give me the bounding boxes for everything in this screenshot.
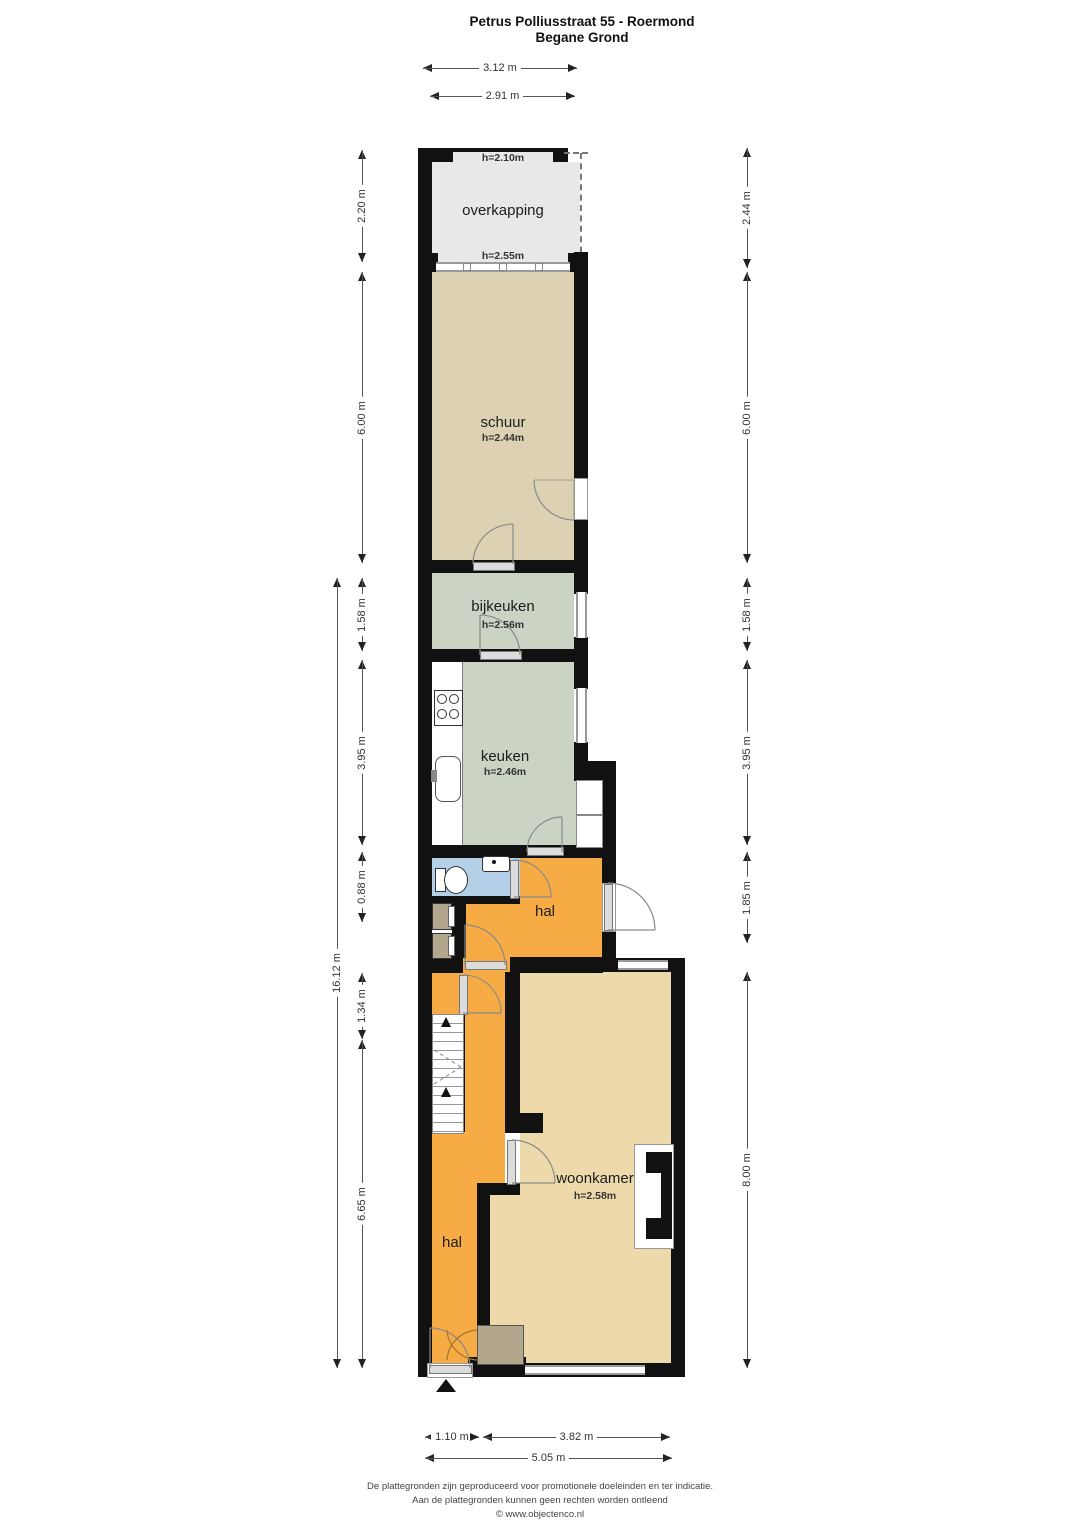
dim-top-291: 2.91 m — [430, 88, 575, 104]
stairs — [432, 1014, 464, 1134]
wall-hal-split-a — [418, 957, 463, 973]
sink-tap — [431, 770, 437, 782]
note-h255: h=2.55m — [453, 250, 553, 262]
note-keuken-h: h=2.46m — [445, 766, 565, 778]
note-schuur-h: h=2.44m — [443, 432, 563, 444]
door-bijkeuken — [480, 651, 522, 660]
overkapping-dashed-right — [578, 153, 582, 263]
title-floor: Begane Grond — [332, 30, 832, 46]
cabinet-2-door — [448, 936, 455, 956]
entrance-cabinet — [477, 1325, 524, 1365]
wall-hal-right-a — [602, 779, 616, 883]
dim-right-600: 6.00 m — [739, 272, 755, 563]
dim-right-395: 3.95 m — [739, 660, 755, 845]
label-hal-boven: hal — [505, 903, 585, 920]
stove-burner — [449, 694, 459, 704]
footer-line-1: De plattegronden zijn geproduceerd voor … — [340, 1480, 740, 1494]
window-mullion — [535, 263, 543, 271]
dim-left-665: 6.65 m — [354, 1040, 370, 1368]
wall-hal-split-b — [510, 957, 603, 973]
stairs-up-arrow — [441, 1017, 451, 1027]
door-front — [604, 884, 613, 931]
toilet-sink-drain — [492, 860, 496, 864]
dim-left-220: 2.20 m — [354, 150, 370, 262]
door-schuur-bottom — [473, 562, 515, 571]
title-address: Petrus Polliusstraat 55 - Roermond — [332, 14, 832, 30]
dim-left-600: 6.00 m — [354, 272, 370, 563]
wall-hal-right-b — [602, 930, 616, 959]
door-hal-stairs — [459, 975, 468, 1015]
dim-left-1612: 16.12 m — [329, 578, 345, 1368]
wall-hal-woonkamer-a — [505, 972, 520, 1122]
toilet-sink — [482, 856, 510, 872]
dim-top-312: 3.12 m — [423, 60, 577, 76]
door-toilet — [510, 860, 519, 899]
window-woonkamer-front — [618, 960, 668, 970]
label-bijkeuken: bijkeuken — [443, 598, 563, 615]
dim-bottom-382: 3.82 m — [483, 1429, 670, 1445]
label-woonkamer: woonkamer — [535, 1170, 655, 1187]
entrance-marker — [436, 1379, 456, 1392]
note-bijkeuken-h: h=2.56m — [443, 619, 563, 631]
label-hal-beneden: hal — [412, 1234, 492, 1251]
fireplace-chimney — [661, 1152, 672, 1239]
dim-left-395: 3.95 m — [354, 660, 370, 845]
wall-strip-block-left — [418, 253, 438, 272]
door-woonkamer — [507, 1140, 516, 1185]
wall-hal-woonkamer-b — [477, 1195, 490, 1327]
wall-right-schuur-b — [574, 518, 588, 594]
dim-right-244: 2.44 m — [739, 148, 755, 268]
stove-burner — [437, 694, 447, 704]
note-woonkamer-h: h=2.58m — [535, 1190, 655, 1202]
wall-jog — [586, 761, 616, 781]
dim-left-088: 0.88 m — [354, 852, 370, 922]
floorplan: Petrus Polliusstraat 55 - Roermond Began… — [0, 0, 1080, 1527]
door-hal-split — [465, 961, 507, 970]
footer-line-3: © www.objectenco.nl — [340, 1508, 740, 1522]
wall-left — [418, 148, 432, 1377]
label-overkapping: overkapping — [443, 202, 563, 219]
wall-tab — [505, 1113, 543, 1133]
window-bijkeuken — [576, 592, 587, 638]
wall-right-schuur-a — [574, 252, 588, 478]
dim-right-158: 1.58 m — [739, 578, 755, 651]
stove-burner — [437, 709, 447, 719]
dim-left-158: 1.58 m — [354, 578, 370, 651]
window-woonkamer-bottom — [525, 1365, 645, 1375]
page-title: Petrus Polliusstraat 55 - Roermond Began… — [332, 14, 832, 46]
door-keuken — [527, 847, 564, 856]
footer-line-2: Aan de plattegronden kunnen geen rechten… — [340, 1494, 740, 1508]
room-hal-beneden-2 — [432, 1195, 477, 1363]
label-schuur: schuur — [443, 414, 563, 431]
wall-right-bijkeuken — [574, 637, 588, 689]
cabinet-1-door — [448, 906, 455, 927]
window-mullion — [463, 263, 471, 271]
room-hal-boven — [520, 845, 602, 958]
window-mullion — [499, 263, 507, 271]
dim-bottom-505: 5.05 m — [425, 1450, 672, 1466]
dim-bottom-110: 1.10 m — [425, 1429, 479, 1445]
note-h210: h=2.10m — [453, 152, 553, 164]
keuken-cabinet-2 — [576, 815, 603, 848]
window-keuken — [576, 688, 587, 743]
toilet-bowl — [444, 866, 468, 894]
label-keuken: keuken — [445, 748, 565, 765]
door-entrance — [429, 1365, 472, 1374]
overkapping-dashed-top — [564, 152, 588, 154]
dim-right-185: 1.85 m — [739, 852, 755, 943]
dim-right-800: 8.00 m — [739, 972, 755, 1368]
keuken-cabinet-1 — [576, 780, 603, 815]
stove-burner — [449, 709, 459, 719]
door-schuur-side — [574, 478, 588, 520]
footer-disclaimer: De plattegronden zijn geproduceerd voor … — [340, 1480, 740, 1521]
dim-left-134: 1.34 m — [354, 973, 370, 1039]
fireplace-tab-bottom — [646, 1218, 662, 1239]
stairs-up-arrow — [441, 1087, 451, 1097]
